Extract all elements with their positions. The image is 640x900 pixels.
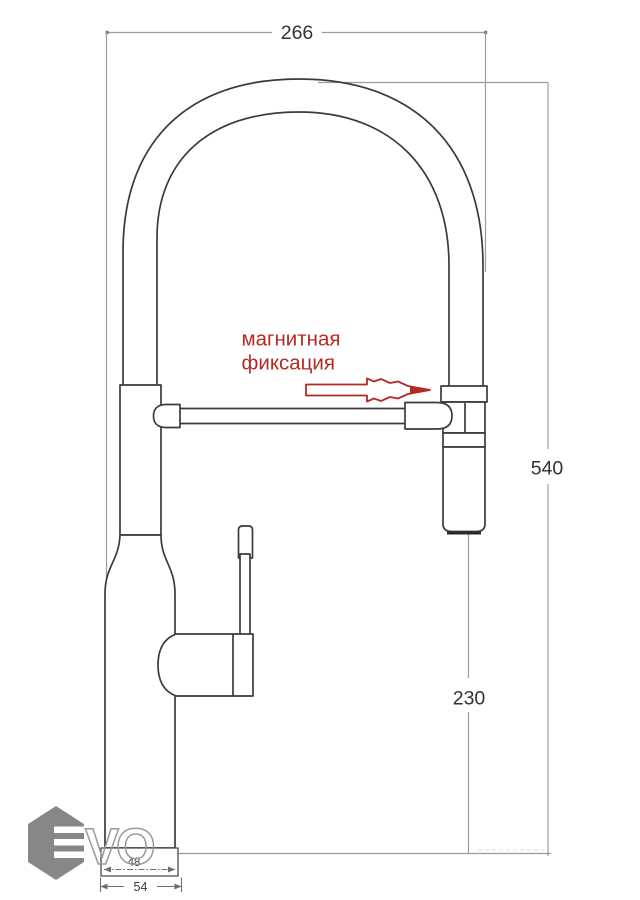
dim-266-label: 266 <box>281 22 314 44</box>
dim-54-arrow-left <box>101 884 108 890</box>
watermark-letters: VO <box>85 818 154 875</box>
spray-head-collar <box>443 433 485 447</box>
dim-54-label: 54 <box>134 880 148 894</box>
hexagon-bar <box>54 839 84 846</box>
lower-body <box>105 535 175 848</box>
arm-body-connector <box>154 405 181 428</box>
faucet <box>101 79 487 876</box>
dim-230-label: 230 <box>453 688 486 710</box>
drawing-canvas: магнитная фиксация 266 540 230 48 54 VO <box>0 0 640 900</box>
magnetic-holder <box>441 386 487 402</box>
watermark-logo: VO <box>28 806 154 880</box>
dim-540-label: 540 <box>531 458 564 480</box>
support-arm <box>178 409 432 424</box>
magnetic-fixation-annotation: магнитная фиксация <box>242 328 431 402</box>
annotation-line1: магнитная <box>242 328 341 351</box>
technical-drawing-faucet: магнитная фиксация 266 540 230 48 54 VO <box>0 0 640 900</box>
arm-end-cap <box>405 403 452 430</box>
dim-54-arrow-right <box>175 884 182 890</box>
handle-housing <box>158 634 253 696</box>
annotation-line2: фиксация <box>242 352 335 375</box>
spray-head-body <box>443 447 485 532</box>
upper-body <box>120 385 161 535</box>
hexagon-bar <box>54 852 84 859</box>
dimension-labels: 266 540 230 48 54 <box>128 22 564 894</box>
handle-stem <box>240 554 250 636</box>
hexagon-bar <box>54 827 84 834</box>
